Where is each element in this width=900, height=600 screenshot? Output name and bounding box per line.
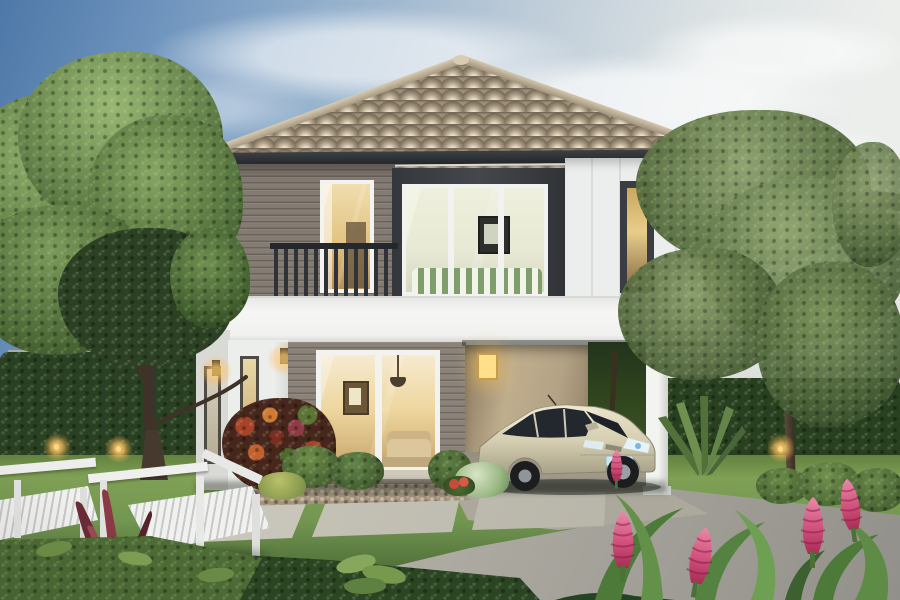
bay-window-mullion: [448, 184, 454, 296]
right-tree-canopy: [756, 262, 900, 427]
sliding-door-divider: [375, 350, 382, 472]
bench-left-leg: [14, 480, 21, 538]
bay-window: [402, 184, 548, 296]
balcony-top-rail: [270, 243, 398, 249]
bay-window-glass: [406, 188, 544, 292]
garden-uplight-dot: [116, 446, 121, 452]
car-rear-rim: [519, 470, 532, 483]
ginger-flower: [801, 497, 825, 568]
bay-window-mullion: [498, 184, 504, 296]
roof-apex-cap: [453, 55, 469, 65]
red-flower-bush: [443, 476, 475, 496]
cloud: [640, 15, 900, 90]
balcony-railing: [274, 246, 394, 302]
garden-uplight-dot: [54, 444, 59, 450]
car-antenna: [548, 395, 556, 405]
interior-picture-mat: [349, 388, 361, 405]
left-tree-canopy: [170, 228, 250, 328]
ginger-flower: [610, 450, 623, 489]
scene: [0, 0, 900, 600]
carport-glow-window: [477, 353, 498, 380]
yellow-bush: [258, 472, 306, 500]
bed-pillows: [412, 268, 542, 294]
pendant-lamp: [397, 355, 399, 377]
pendant-lamp-shade: [390, 377, 406, 387]
right-tree-canopy: [832, 142, 900, 267]
ginger-flowers: [555, 438, 900, 600]
bush-under-window: [330, 452, 384, 490]
